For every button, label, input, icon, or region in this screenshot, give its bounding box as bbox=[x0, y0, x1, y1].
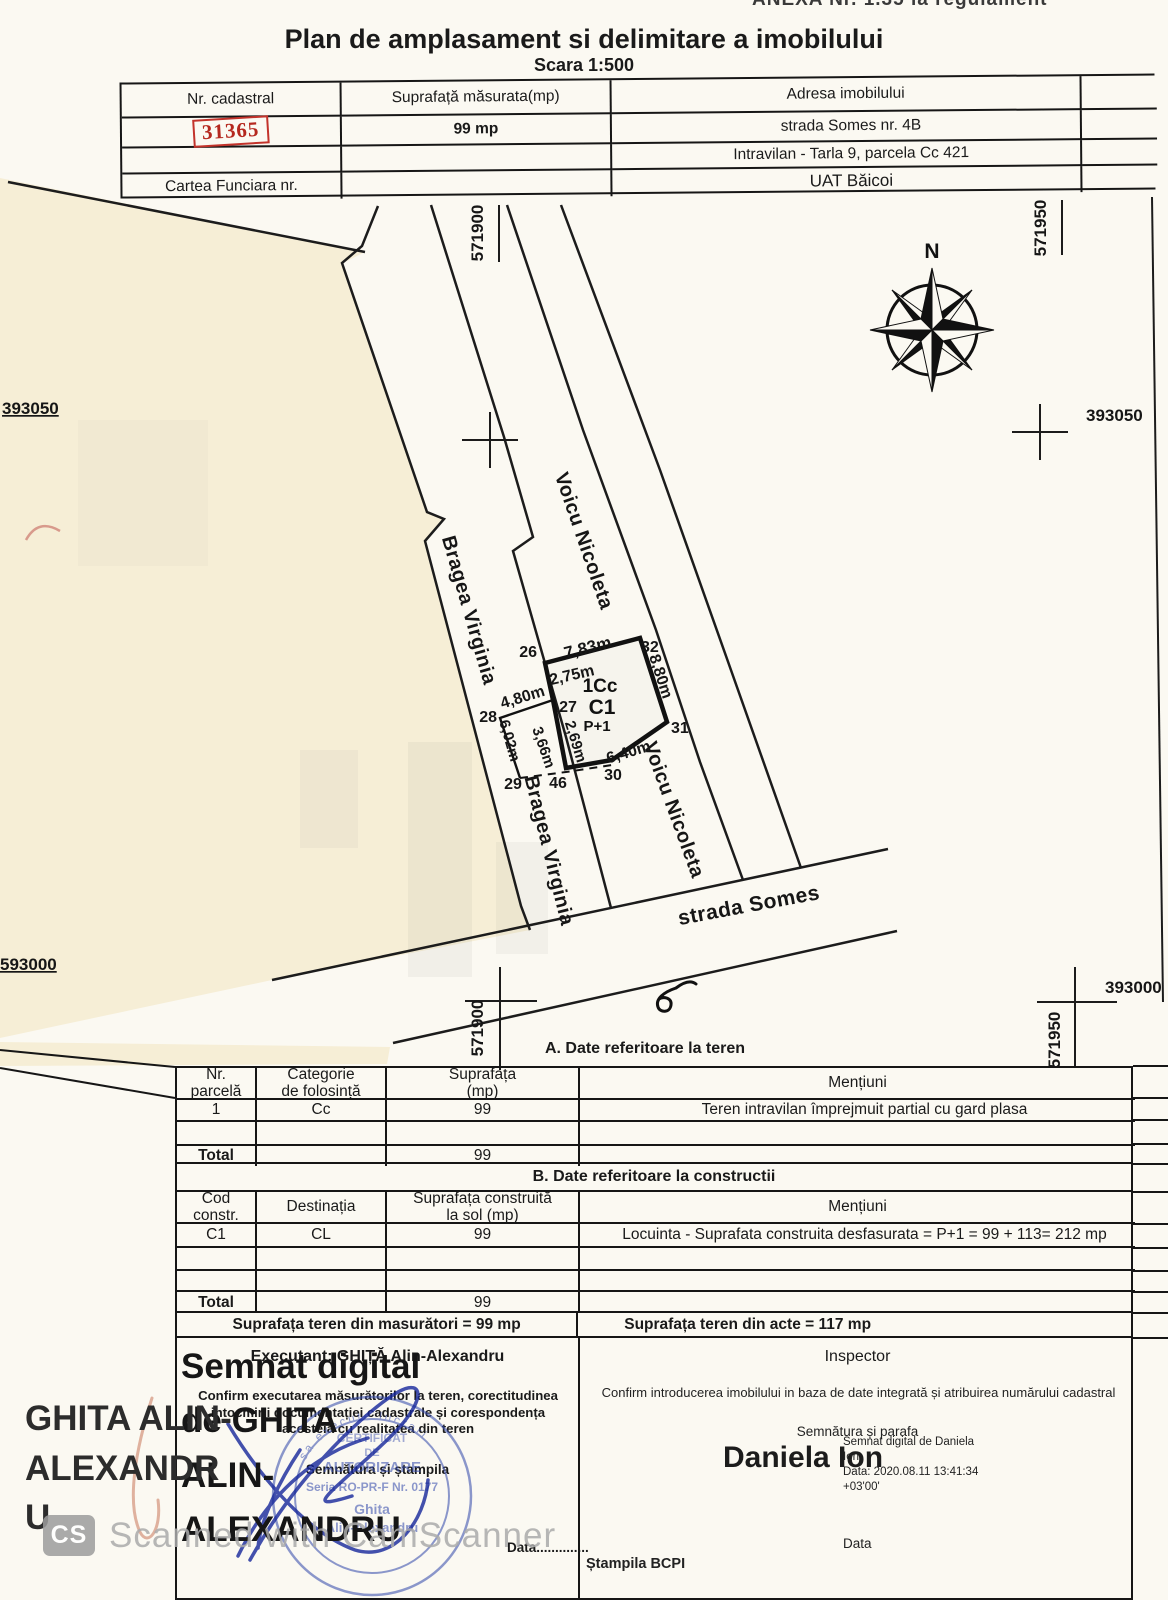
land-mentions-cell: Teren intravilan împrejmuit partial cu g… bbox=[580, 1100, 1135, 1122]
point-29: 29 bbox=[504, 776, 522, 793]
street-label: strada Somes bbox=[676, 881, 822, 930]
coord-571950-top: 571950 bbox=[1031, 200, 1050, 257]
adresa-header: Adresa imobilului bbox=[612, 76, 1082, 114]
construction-mentions-cell: Locuinta - Suprafata construita desfasur… bbox=[580, 1224, 1135, 1248]
parcel-dashed-edge bbox=[520, 765, 612, 778]
col-suprafata-construita: Suprafața construită la sol (mp) bbox=[387, 1192, 580, 1224]
anexa-note: ANEXA Nr. 1.35 la regulament bbox=[752, 0, 1048, 11]
point-27: 27 bbox=[559, 699, 577, 716]
parcel-west-edge bbox=[500, 700, 553, 778]
identification-table: Nr. cadastral Suprafață măsurata(mp) Adr… bbox=[120, 73, 1156, 198]
measured-area-value: 99 mp bbox=[342, 114, 612, 146]
red-pen-artifact bbox=[26, 526, 60, 540]
dim-4-80: 4,80m bbox=[499, 683, 547, 713]
coord-393000-right: 393000 bbox=[1105, 978, 1162, 997]
built-area-cell: 99 bbox=[387, 1224, 580, 1248]
address-line-1: strada Somes nr. 4B bbox=[612, 110, 1082, 144]
dim-3-66: 3,66m bbox=[528, 725, 558, 771]
nr-cadastral-header: Nr. cadastral bbox=[122, 83, 342, 119]
building-floors-label: P+1 bbox=[583, 718, 610, 735]
point-32: 32 bbox=[641, 639, 659, 656]
cartea-funciara-label: Cartea Funciara nr. bbox=[122, 173, 342, 201]
suprafata-header: Suprafață măsurata(mp) bbox=[342, 80, 612, 116]
construction-data-table: Cod constr. Destinația Suprafața constru… bbox=[175, 1192, 1133, 1313]
parcel-code-label: 1Cc bbox=[583, 676, 618, 697]
category-cell: Cc bbox=[257, 1100, 387, 1122]
point-30: 30 bbox=[604, 767, 622, 784]
land-total-label: Total bbox=[177, 1146, 257, 1166]
digital-line-4: +03'00' bbox=[843, 1480, 978, 1495]
col-destinatia: Destinația bbox=[257, 1192, 387, 1224]
lower-left-region bbox=[0, 1042, 390, 1066]
coordinate-grid-crosses bbox=[462, 200, 1117, 1070]
measured-land-area: Suprafața teren din masurători = 99 mp bbox=[177, 1313, 578, 1336]
inspector-confirm-text: Confirm introducerea imobilului in baza … bbox=[586, 1385, 1131, 1400]
address-line-2: Intravilan - Tarla 9, parcela Cc 421 bbox=[612, 140, 1082, 170]
digital-line-3: Data: 2020.08.11 13:41:34 bbox=[843, 1465, 978, 1480]
area-cell: 99 bbox=[387, 1100, 580, 1122]
camscanner-text: Scanned with CamScanner bbox=[109, 1516, 556, 1556]
col-cod-constr: Cod constr. bbox=[177, 1192, 257, 1224]
land-total-value: 99 bbox=[387, 1146, 580, 1166]
col-categorie: Categorie de folosință bbox=[257, 1068, 387, 1100]
page-title: Plan de amplasament si delimitare a imob… bbox=[0, 24, 1168, 55]
section-a-title: A. Date referitoare la teren bbox=[395, 1040, 895, 1058]
parcel-nr-cell: 1 bbox=[177, 1100, 257, 1122]
neighbor-label-voicu-2: Voicu Nicoleta bbox=[639, 739, 709, 882]
col-suprafata: Suprafața (mp) bbox=[387, 1068, 580, 1100]
point-31: 31 bbox=[671, 720, 689, 737]
digital-line-2: Ion bbox=[843, 1450, 978, 1465]
dim-7-83: 7,83m bbox=[562, 633, 613, 663]
building-c1-outline bbox=[545, 638, 667, 768]
building-code-label: C1 bbox=[589, 696, 616, 719]
col-nr-parcela: Nr. parcelă bbox=[177, 1068, 257, 1100]
dim-6-40: 6,40m bbox=[605, 738, 653, 768]
inspector-label: Inspector bbox=[580, 1348, 1135, 1366]
frame-right-border bbox=[1152, 197, 1163, 1002]
section-b-title-band: B. Date referitoare la constructii bbox=[175, 1164, 1133, 1192]
margin-signer-line-2: ALEXANDR bbox=[25, 1444, 232, 1494]
north-label: N bbox=[924, 240, 939, 263]
destination-cell: CL bbox=[257, 1224, 387, 1248]
coord-571900-top: 571900 bbox=[468, 205, 487, 262]
dim-8-80: 8,80m bbox=[645, 652, 675, 700]
scan-ghost-artifacts bbox=[78, 420, 548, 977]
bcpi-stamp-label: Ștampila BCPI bbox=[586, 1556, 685, 1572]
inspector-cell: Inspector Confirm introducerea imobilulu… bbox=[580, 1338, 1135, 1600]
col-mentiuni-b: Mențiuni bbox=[580, 1192, 1135, 1224]
cadastral-number-stamp: 31365 bbox=[192, 115, 269, 148]
point-26: 26 bbox=[519, 644, 537, 661]
building-code-cell: C1 bbox=[177, 1224, 257, 1248]
parcel-boundary-lines bbox=[8, 182, 897, 1043]
point-28: 28 bbox=[479, 709, 497, 726]
scale-label: Scara 1:500 bbox=[0, 55, 1168, 76]
construction-total-value: 99 bbox=[387, 1292, 580, 1313]
col-mentiuni: Mențiuni bbox=[580, 1068, 1135, 1100]
scanned-cadastral-plan: N Voicu Nicoleta Bragea Virginia Bragea … bbox=[0, 0, 1168, 1600]
coord-571950-bottom: 571950 bbox=[1045, 1012, 1064, 1069]
camscanner-watermark: CS Scanned with CamScanner bbox=[43, 1515, 556, 1556]
coord-393050-left: 393050 bbox=[2, 399, 59, 418]
land-data-table: Nr. parcelă Categorie de folosință Supra… bbox=[175, 1066, 1133, 1164]
coord-593000-left: 593000 bbox=[0, 955, 57, 974]
inspector-digital-signature: Semnat digital de Daniela Ion Data: 2020… bbox=[843, 1435, 978, 1495]
deed-land-area: Suprafața teren din acte = 117 mp bbox=[578, 1313, 1131, 1336]
area-summary-row: Suprafața teren din masurători = 99 mp S… bbox=[175, 1313, 1133, 1338]
large-parcel-region bbox=[0, 178, 530, 1038]
coord-393050-right: 393050 bbox=[1086, 406, 1143, 425]
dim-2-75: 2,75m bbox=[548, 662, 596, 689]
parcel-point-numbers: 26 27 28 29 30 31 32 46 bbox=[479, 639, 689, 793]
handwritten-mark bbox=[657, 982, 696, 1011]
neighbor-label-voicu-1: Voicu Nicoleta bbox=[550, 470, 618, 613]
digital-line-1: Semnat digital de Daniela bbox=[843, 1435, 978, 1450]
compass-rose: N bbox=[870, 240, 994, 392]
construction-total-label: Total bbox=[177, 1292, 257, 1313]
address-line-3: UAT Băicoi bbox=[612, 166, 1082, 196]
dim-2-69: 2,69m bbox=[561, 719, 590, 765]
neighbor-label-bragea-1: Bragea Virginia bbox=[437, 533, 501, 687]
inspector-date-label: Data bbox=[843, 1536, 872, 1551]
margin-signer-line-1: GHITA ALIN- bbox=[25, 1394, 232, 1444]
neighbor-label-bragea-2: Bragea Virginia bbox=[520, 773, 579, 928]
camscanner-logo: CS bbox=[43, 1515, 95, 1556]
point-46: 46 bbox=[549, 775, 567, 792]
exec-digital-line-1: Semnat digital bbox=[181, 1340, 420, 1394]
dim-6-02: 6,02m bbox=[495, 718, 523, 764]
